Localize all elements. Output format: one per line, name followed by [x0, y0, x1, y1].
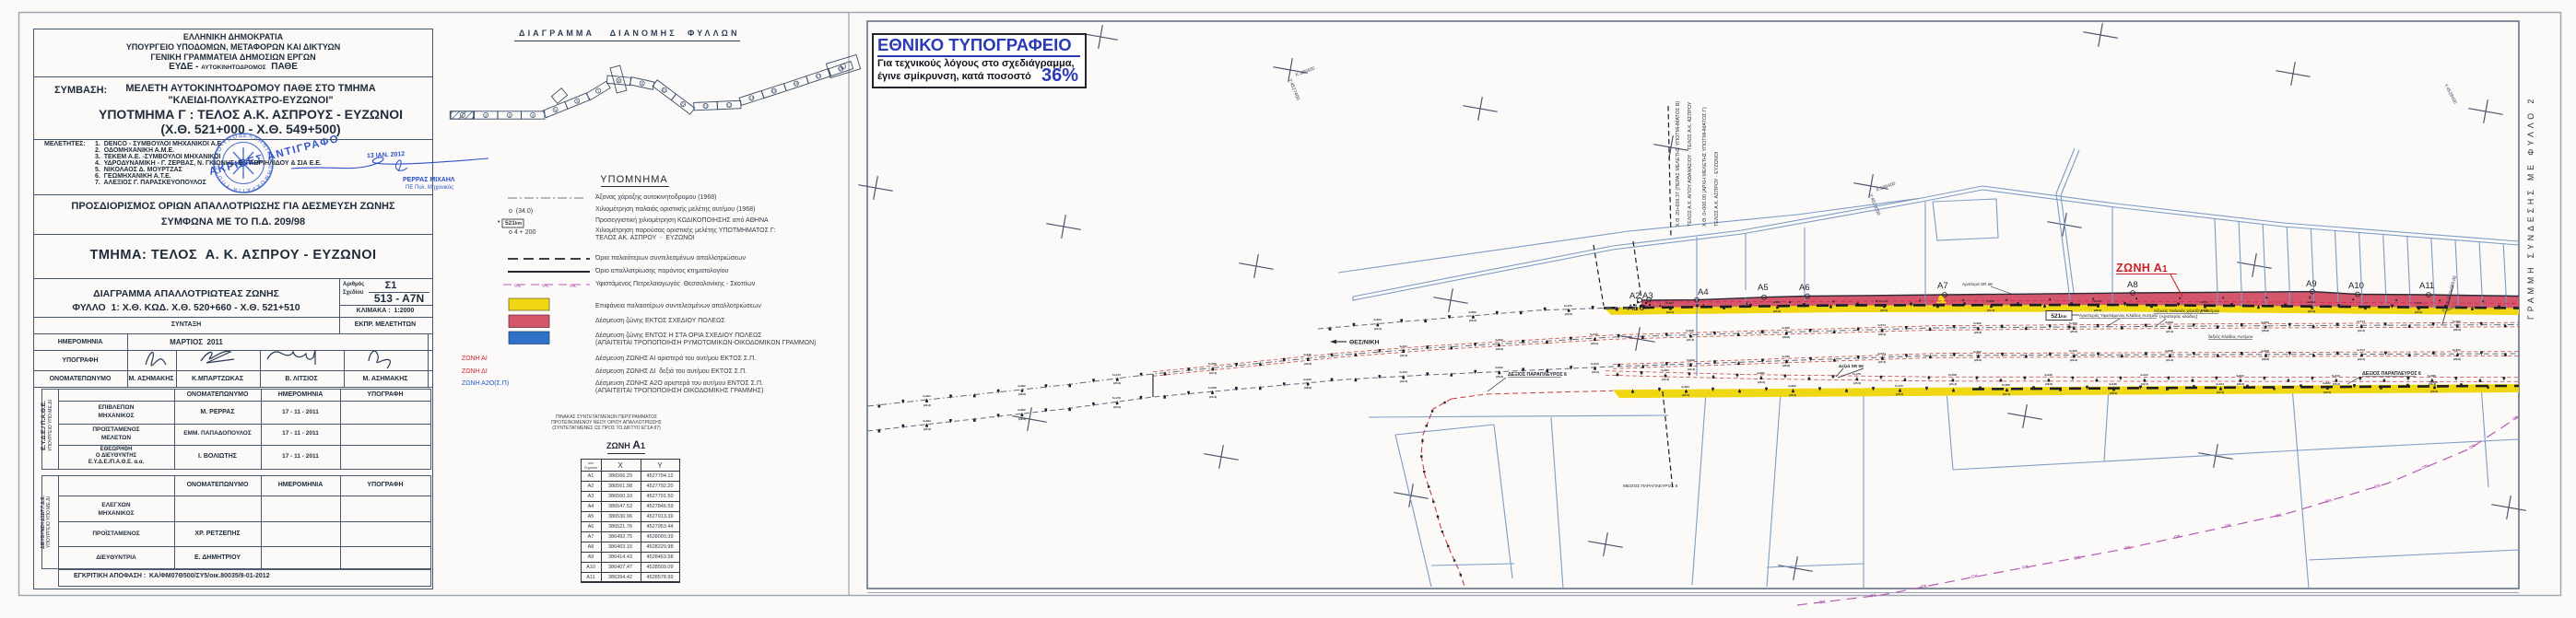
svg-text:(20.0): (20.0)	[1853, 381, 1861, 385]
svg-text:A11: A11	[2419, 281, 2434, 291]
svg-text:4+574: 4+574	[1877, 352, 1886, 356]
svg-text:Δεξιά SR 59: Δεξιά SR 59	[1839, 364, 1864, 369]
svg-text:5+170: 5+170	[1879, 299, 1888, 303]
svg-text:(20.0): (20.0)	[1565, 312, 1572, 316]
svg-text:Χ.Θ. 20+659.37 (ΠΕΡΑΣ ΜΕΛΕΤΗΣ: Χ.Θ. 20+659.37 (ΠΕΡΑΣ ΜΕΛΕΤΗΣ ΥΠΟΤΜΗΜΑΤΟ…	[1676, 101, 1681, 227]
svg-text:(26.6): (26.6)	[2308, 309, 2315, 313]
svg-text:4+434: 4+434	[2216, 382, 2224, 386]
svg-text:(26.6): (26.6)	[1018, 392, 1026, 396]
svg-text:Άξονας παλαιάς χάραξης αυτ/μου: Άξονας παλαιάς χάραξης αυτ/μου	[2154, 308, 2219, 314]
svg-text:5+698: 5+698	[2428, 374, 2436, 378]
svg-text:4+682: 4+682	[1788, 384, 1796, 388]
svg-text:4+294: 4+294	[1661, 368, 1669, 372]
svg-text:(26.6): (26.6)	[1758, 380, 1765, 384]
svg-text:OIL: OIL	[2225, 522, 2233, 529]
svg-text:(22.2): (22.2)	[2358, 357, 2365, 361]
svg-text:X:386400: X:386400	[1295, 66, 1316, 78]
svg-text:(20.0): (20.0)	[1592, 370, 1599, 374]
svg-text:4+434: 4+434	[2200, 300, 2208, 304]
svg-text:(26.6): (26.6)	[2323, 391, 2331, 394]
svg-text:ΔΕΞΙΟΣ ΠΑΡΑΠΛΕΥΡΟΣ 6: ΔΕΞΙΟΣ ΠΑΡΑΠΛΕΥΡΟΣ 6	[1508, 372, 1567, 378]
svg-text:OIL: OIL	[2074, 554, 2082, 560]
svg-text:OIL: OIL	[570, 284, 577, 288]
svg-text:OIL: OIL	[1870, 593, 1877, 599]
svg-text:5+170: 5+170	[1112, 396, 1121, 400]
svg-text:(24.4): (24.4)	[1949, 382, 1957, 386]
svg-text:(22.2): (22.2)	[1400, 354, 1407, 357]
svg-text:4+434: 4+434	[2140, 373, 2148, 377]
svg-text:5+310: 5+310	[1590, 332, 1598, 336]
svg-text:(28.8): (28.8)	[2262, 329, 2269, 332]
svg-text:5+202: 5+202	[2452, 320, 2461, 323]
svg-text:(24.4): (24.4)	[1688, 367, 1695, 371]
svg-text:4+682: 4+682	[1772, 300, 1781, 304]
svg-text:4+434: 4+434	[1399, 370, 1407, 374]
svg-text:4+574: 4+574	[1877, 323, 1886, 327]
svg-text:(20.0): (20.0)	[2333, 382, 2340, 386]
svg-text:(26.6): (26.6)	[1469, 319, 1476, 322]
svg-text:OIL: OIL	[2421, 463, 2429, 471]
svg-text:(28.8): (28.8)	[1304, 362, 1312, 366]
svg-text:(24.4): (24.4)	[2166, 358, 2173, 362]
svg-text:5+962: 5+962	[1973, 321, 1982, 325]
svg-text:(26.6): (26.6)	[2237, 382, 2244, 386]
svg-text:5+202: 5+202	[2452, 348, 2461, 352]
svg-text:4+294: 4+294	[1665, 301, 1674, 305]
svg-text:(20.0): (20.0)	[2070, 358, 2077, 362]
svg-text:OIL: OIL	[1819, 600, 1827, 605]
svg-text:(20.0): (20.0)	[2415, 310, 2422, 314]
svg-text:A9: A9	[2306, 279, 2317, 289]
svg-text:4+294: 4+294	[1681, 385, 1689, 389]
svg-text:(22.2): (22.2)	[1878, 360, 1886, 364]
svg-text:4+326: 4+326	[2261, 349, 2269, 353]
svg-text:5+310: 5+310	[1591, 362, 1599, 366]
svg-text:5+170: 5+170	[1112, 373, 1121, 377]
svg-text:OIL: OIL	[2174, 533, 2182, 540]
svg-text:(24.4): (24.4)	[1209, 371, 1217, 375]
svg-text:4+714: 4+714	[2357, 348, 2365, 352]
svg-text:(22.2): (22.2)	[923, 427, 931, 431]
svg-text:(22.2): (22.2)	[1662, 378, 1669, 381]
svg-text:A5: A5	[1758, 283, 1769, 293]
svg-text:4+822: 4+822	[2307, 300, 2315, 304]
svg-text:(26.6): (26.6)	[1974, 331, 1982, 334]
svg-text:ΘΕΣ/ΝΙΚΗ: ΘΕΣ/ΝΙΚΗ	[1349, 340, 1379, 346]
svg-text:4+682: 4+682	[1017, 408, 1026, 412]
svg-text:(24.4): (24.4)	[2003, 392, 2010, 396]
svg-text:4+822: 4+822	[2323, 381, 2331, 385]
svg-text:A3: A3	[1642, 291, 1653, 301]
svg-text:4+186: 4+186	[1782, 326, 1790, 330]
svg-text:OIL: OIL	[2276, 512, 2284, 519]
svg-text:(22.2): (22.2)	[1400, 379, 1407, 383]
svg-text:(20.0): (20.0)	[1113, 405, 1121, 409]
svg-text:4+294: 4+294	[1373, 318, 1382, 321]
svg-text:ΖΩΝΗ Α1: ΖΩΝΗ Α1	[2116, 262, 2168, 274]
svg-text:5+962: 5+962	[1973, 350, 1982, 354]
svg-text:5+698: 5+698	[1687, 358, 1695, 362]
svg-text:4+186: 4+186	[1782, 355, 1790, 358]
svg-text:Αριστερά SR a8: Αριστερά SR a8	[1962, 281, 1993, 286]
svg-text:OIL: OIL	[514, 284, 522, 288]
svg-text:(28.8): (28.8)	[1782, 335, 1790, 339]
svg-text:(20.0): (20.0)	[2070, 330, 2077, 333]
svg-text:A2: A2	[1629, 291, 1641, 301]
svg-text:A8: A8	[2127, 280, 2138, 290]
svg-text:δεξιός Κλάδος Αυτ/μου: δεξιός Κλάδος Αυτ/μου	[2208, 333, 2253, 340]
svg-text:Y:4528400: Y:4528400	[2442, 83, 2458, 105]
svg-text:Y:4527400: Y:4527400	[1287, 78, 1300, 101]
svg-text:OIL: OIL	[2373, 483, 2382, 489]
svg-text:4+294: 4+294	[923, 394, 931, 398]
svg-text:(28.8): (28.8)	[2262, 357, 2269, 361]
svg-text:5+310: 5+310	[2429, 380, 2438, 384]
svg-text:(28.8): (28.8)	[2110, 391, 2117, 395]
svg-text:A6: A6	[1799, 283, 1810, 293]
svg-text:521km: 521km	[2051, 313, 2066, 320]
svg-text:5+450: 5+450	[2069, 349, 2077, 353]
svg-text:(22.2): (22.2)	[1666, 310, 1674, 314]
svg-text:(28.8): (28.8)	[2094, 309, 2101, 312]
svg-text:4+294: 4+294	[923, 419, 931, 423]
svg-text:4+946: 4+946	[1303, 378, 1312, 381]
svg-text:(28.8): (28.8)	[2045, 382, 2053, 386]
svg-text:(22.2): (22.2)	[2358, 329, 2365, 332]
svg-text:5+170: 5+170	[1564, 304, 1572, 308]
svg-text:X:386400: X:386400	[1876, 181, 1897, 193]
svg-text:4+946: 4+946	[2044, 373, 2053, 377]
svg-text:(22.2): (22.2)	[2217, 391, 2224, 394]
svg-text:(26.6): (26.6)	[1773, 309, 1781, 313]
svg-text:5+310: 5+310	[2332, 374, 2340, 378]
svg-text:(28.8): (28.8)	[1304, 386, 1312, 390]
svg-text:(26.6): (26.6)	[1496, 347, 1503, 351]
svg-text:4+946: 4+946	[2093, 299, 2101, 303]
svg-text:A4: A4	[1698, 287, 1709, 297]
svg-text:(20.0): (20.0)	[1113, 381, 1121, 385]
svg-text:4+682: 4+682	[1757, 371, 1765, 375]
svg-text:OIL: OIL	[1971, 573, 1980, 578]
svg-text:(20.0): (20.0)	[1591, 342, 1598, 345]
svg-text:(24.4): (24.4)	[1687, 338, 1694, 342]
svg-text:Χ.Θ. 0+000.00 (ΑΡΧΗ ΜΕΛΕΤΗΣ ΥΠ: Χ.Θ. 0+000.00 (ΑΡΧΗ ΜΕΛΕΤΗΣ ΥΠΟΤΜΗΜΑΤΟΣ …	[1702, 107, 1708, 227]
svg-text:OIL: OIL	[2022, 564, 2030, 569]
svg-text:(20.0): (20.0)	[1896, 392, 1903, 396]
svg-text:5+558: 5+558	[1208, 386, 1217, 390]
svg-text:5+558: 5+558	[1208, 362, 1217, 366]
svg-text:4+946: 4+946	[1303, 353, 1312, 356]
svg-text:OIL: OIL	[2324, 497, 2333, 504]
svg-text:(24.4): (24.4)	[1209, 395, 1217, 399]
svg-text:5+558: 5+558	[1948, 373, 1957, 377]
svg-text:4+434: 4+434	[1399, 344, 1407, 348]
svg-text:5+170: 5+170	[1853, 372, 1861, 376]
svg-text:ΔΕΞΙΟΣ ΠΑΡΑΠΛΕΥΡΟΣ 6: ΔΕΞΙΟΣ ΠΑΡΑΠΛΕΥΡΟΣ 6	[2362, 371, 2421, 377]
svg-text:(26.6): (26.6)	[1789, 393, 1796, 397]
svg-text:(24.4): (24.4)	[2166, 330, 2173, 333]
svg-text:4+682: 4+682	[1468, 310, 1476, 314]
svg-text:(26.6): (26.6)	[1974, 358, 1982, 362]
svg-text:(Αριστερός κλάδος): (Αριστερός κλάδος)	[2159, 313, 2198, 320]
svg-text:5+170: 5+170	[1895, 384, 1903, 388]
svg-text:(22.2): (22.2)	[923, 403, 931, 407]
svg-text:(22.2): (22.2)	[1374, 327, 1382, 331]
svg-text:ΜΕΣΙΟΣ ΠΑΡΑΠΛΕΥΡΟΣ 8: ΜΕΣΙΟΣ ΠΑΡΑΠΛΕΥΡΟΣ 8	[1623, 484, 1678, 489]
svg-text:(22.2): (22.2)	[1878, 332, 1886, 336]
svg-text:OIL: OIL	[542, 284, 549, 288]
svg-text:4+822: 4+822	[1495, 366, 1503, 369]
svg-text:5+698: 5+698	[1686, 329, 1694, 332]
svg-text:5+558: 5+558	[1986, 299, 1994, 303]
svg-text:(26.6): (26.6)	[1496, 375, 1503, 379]
svg-text:(26.6): (26.6)	[2453, 328, 2461, 332]
svg-text:(22.2): (22.2)	[2141, 382, 2148, 386]
svg-text:4+822: 4+822	[1495, 338, 1503, 342]
svg-text:ΓΡΑΜΜΗ ΣΥΝΔΕΣΗΣ ΜΕ ΦΥΛΛΟ 2: ΓΡΑΜΜΗ ΣΥΝΔΕΣΗΣ ΜΕ ΦΥΛΛΟ 2	[2526, 96, 2535, 320]
svg-text:5+558: 5+558	[2002, 383, 2010, 387]
svg-text:4+714: 4+714	[2357, 320, 2365, 323]
svg-text:OIL: OIL	[2468, 442, 2476, 449]
svg-text:4+326: 4+326	[2261, 321, 2269, 324]
svg-text:Αριστερός Υφιστάμενος Κλάδος Α: Αριστερός Υφιστάμενος Κλάδος Αυτ/μου	[2079, 312, 2158, 319]
svg-text:ΤΕΛΟΣ Α.Κ. ΑΓΙΟΥ ΑΘΑΝΑΣΙΟΥ - Τ: ΤΕΛΟΣ Α.Κ. ΑΓΙΟΥ ΑΘΑΝΑΣΙΟΥ - ΤΕΛΟΣ Α.Κ. …	[1688, 101, 1693, 227]
svg-text:(28.8): (28.8)	[1782, 364, 1790, 367]
svg-text:(20.0): (20.0)	[1880, 309, 1888, 312]
svg-text:OIL: OIL	[2124, 544, 2133, 551]
svg-text:4+946: 4+946	[2109, 382, 2117, 386]
svg-text:(24.4): (24.4)	[1987, 309, 1994, 312]
svg-text:(20.0): (20.0)	[2430, 390, 2438, 393]
svg-text:ΤΕΛΟΣ Α.Κ. ΑΣΠΡΟΥ - ΕΥΖΩΝΟΙ: ΤΕΛΟΣ Α.Κ. ΑΣΠΡΟΥ - ΕΥΖΩΝΟΙ	[1714, 152, 1720, 227]
svg-text:4+838: 4+838	[2165, 349, 2173, 353]
svg-text:A7: A7	[1937, 281, 1948, 291]
svg-text:(26.6): (26.6)	[1018, 417, 1026, 421]
svg-text:4+822: 4+822	[2236, 374, 2244, 378]
svg-text:(22.2): (22.2)	[1682, 393, 1689, 397]
svg-text:5+310: 5+310	[2414, 301, 2422, 305]
svg-text:4+682: 4+682	[1017, 384, 1026, 388]
svg-text:A10: A10	[2348, 281, 2364, 291]
svg-text:(26.6): (26.6)	[2453, 357, 2461, 361]
svg-text:5+450: 5+450	[2069, 321, 2077, 325]
svg-text:4+838: 4+838	[2165, 321, 2173, 324]
